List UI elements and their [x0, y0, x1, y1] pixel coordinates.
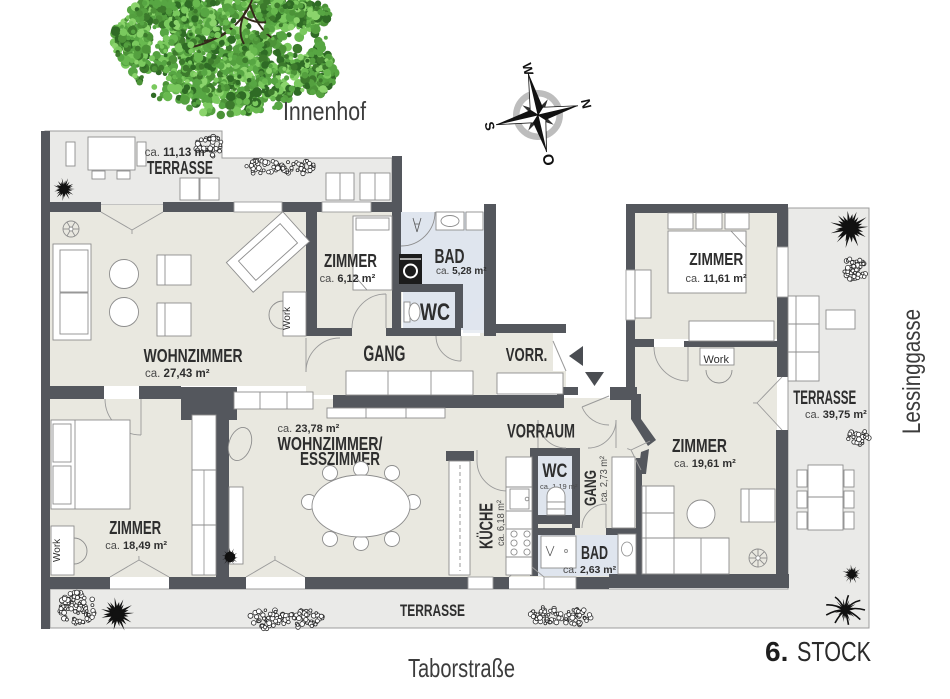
svg-text:ca. 2,73 m²: ca. 2,73 m² — [599, 455, 610, 502]
svg-text:TERRASSE: TERRASSE — [793, 388, 856, 409]
svg-text:Work: Work — [282, 306, 293, 330]
svg-text:ca. 11,61 m²: ca. 11,61 m² — [686, 273, 747, 285]
svg-text:ca. 2,63 m²: ca. 2,63 m² — [563, 564, 617, 576]
svg-text:TERRASSE: TERRASSE — [147, 158, 213, 178]
svg-text:BAD: BAD — [435, 246, 465, 268]
svg-text:VORR.: VORR. — [506, 345, 548, 365]
svg-text:Lessinggasse: Lessinggasse — [898, 309, 926, 434]
svg-text:WOHNZIMMER: WOHNZIMMER — [144, 346, 243, 366]
svg-text:WC: WC — [542, 461, 567, 482]
svg-text:6.: 6. — [765, 636, 788, 667]
svg-text:ZIMMER: ZIMMER — [672, 436, 727, 456]
svg-text:GANG: GANG — [363, 341, 405, 366]
svg-text:Innenhof: Innenhof — [283, 96, 367, 126]
svg-text:ZIMMER: ZIMMER — [324, 251, 377, 271]
svg-text:BAD: BAD — [581, 543, 608, 563]
svg-text:ca. 18,49 m²: ca. 18,49 m² — [105, 540, 167, 552]
svg-text:WC: WC — [420, 299, 450, 326]
svg-text:ca. 11,13 m²: ca. 11,13 m² — [145, 147, 209, 159]
svg-text:ZIMMER: ZIMMER — [109, 518, 161, 538]
svg-text:VORRAUM: VORRAUM — [507, 421, 575, 443]
svg-text:ca. 27,43 m²: ca. 27,43 m² — [145, 368, 210, 380]
svg-text:ca. 39,75 m²: ca. 39,75 m² — [805, 409, 867, 421]
svg-text:STOCK: STOCK — [797, 636, 871, 667]
svg-text:GANG: GANG — [581, 470, 600, 506]
svg-text:ca. 6,12 m²: ca. 6,12 m² — [320, 273, 376, 285]
svg-text:Work: Work — [704, 354, 730, 366]
svg-text:Work: Work — [52, 538, 63, 562]
svg-text:ca. 6,18 m²: ca. 6,18 m² — [495, 500, 507, 546]
svg-text:TERRASSE: TERRASSE — [400, 601, 465, 620]
svg-text:ca. 5,28 m²: ca. 5,28 m² — [436, 266, 487, 277]
svg-text:Taborstraße: Taborstraße — [408, 653, 515, 683]
svg-text:ca. 19,61 m²: ca. 19,61 m² — [674, 458, 736, 470]
svg-text:ZIMMER: ZIMMER — [689, 249, 743, 269]
svg-text:KÜCHE: KÜCHE — [477, 503, 497, 549]
